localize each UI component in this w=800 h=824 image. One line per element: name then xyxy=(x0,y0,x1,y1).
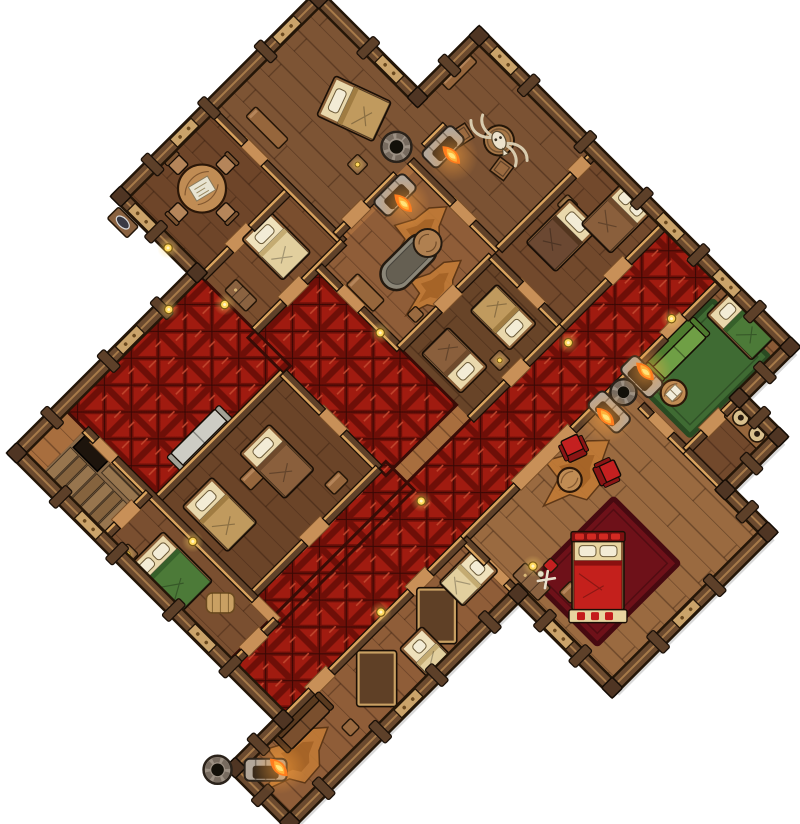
wicker-rug xyxy=(206,593,234,613)
building xyxy=(0,0,800,824)
map-canvas xyxy=(0,0,800,824)
battle-map xyxy=(0,0,800,824)
bed-red xyxy=(569,532,627,623)
bed-bare xyxy=(357,651,397,707)
